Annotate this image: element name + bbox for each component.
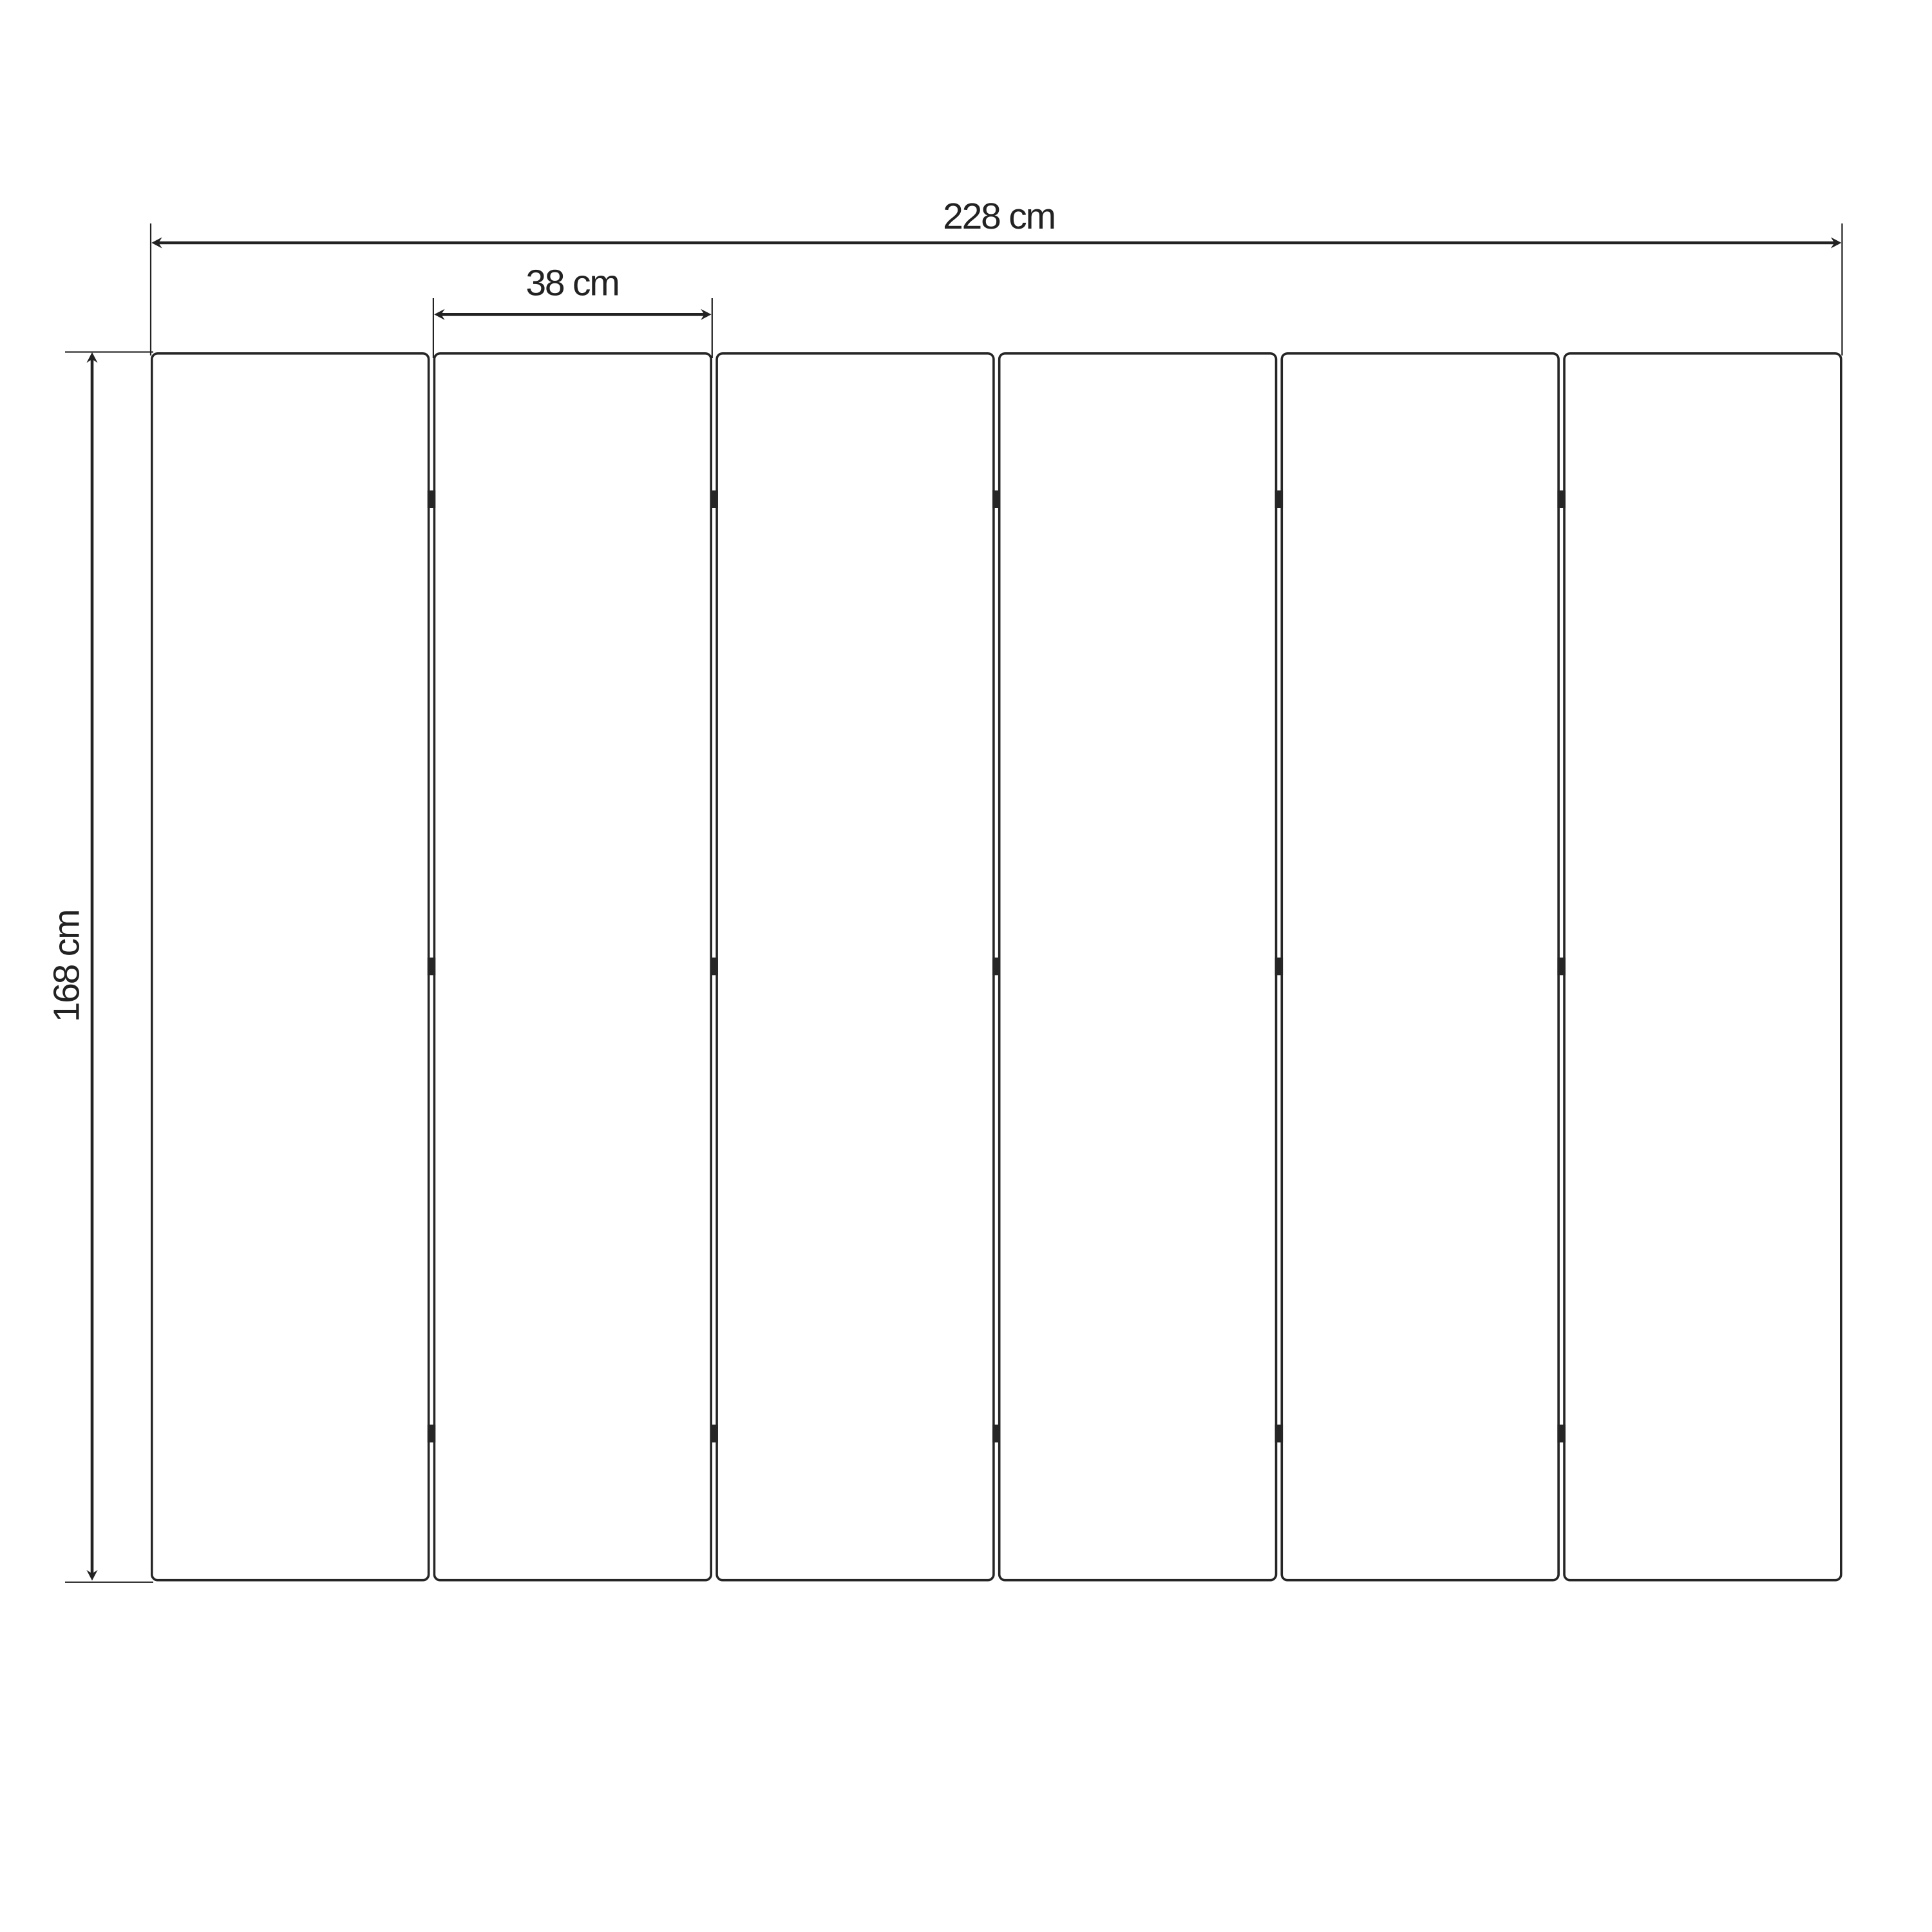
svg-text:168 cm: 168 cm [46, 911, 88, 1023]
svg-text:38 cm: 38 cm [526, 263, 618, 304]
svg-text:228 cm: 228 cm [943, 196, 1055, 237]
